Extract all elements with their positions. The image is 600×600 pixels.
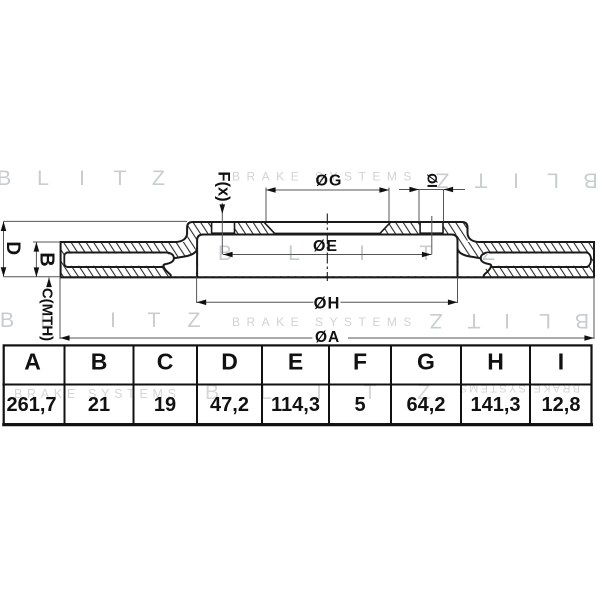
svg-text:261,7: 261,7 <box>6 394 56 416</box>
svg-text:BRAKE SYSTEMS: BRAKE SYSTEMS <box>232 315 418 329</box>
svg-text:I: I <box>110 308 116 332</box>
svg-text:19: 19 <box>154 394 176 416</box>
svg-text:T: T <box>113 166 126 190</box>
svg-text:H: H <box>487 349 504 375</box>
svg-text:C: C <box>157 349 174 375</box>
svg-text:A: A <box>24 349 41 375</box>
svg-text:T: T <box>474 169 487 193</box>
svg-text:Z: Z <box>429 309 442 333</box>
svg-text:B: B <box>575 309 589 333</box>
svg-text:B: B <box>0 308 14 332</box>
svg-text:ØH: ØH <box>314 294 341 312</box>
svg-text:B: B <box>36 252 58 266</box>
svg-text:T: T <box>467 309 480 333</box>
svg-text:Z: Z <box>187 308 200 332</box>
svg-text:I: I <box>359 241 365 265</box>
svg-text:L: L <box>37 166 49 190</box>
svg-text:47,2: 47,2 <box>210 394 249 416</box>
svg-text:I: I <box>558 349 564 375</box>
svg-text:B: B <box>91 349 108 375</box>
svg-text:L: L <box>547 169 559 193</box>
svg-text:Z: Z <box>152 166 165 190</box>
svg-text:ØE: ØE <box>313 238 338 255</box>
svg-text:T: T <box>147 308 160 332</box>
svg-text:ØI: ØI <box>425 173 441 188</box>
svg-text:B: B <box>583 169 597 193</box>
svg-text:I: I <box>79 166 85 190</box>
svg-text:C(MTH): C(MTH) <box>39 288 56 341</box>
svg-text:ØG: ØG <box>316 173 343 190</box>
svg-text:E: E <box>288 349 303 375</box>
svg-text:F: F <box>353 349 367 375</box>
svg-text:L: L <box>288 241 300 265</box>
svg-text:D: D <box>2 241 23 255</box>
svg-text:B: B <box>0 166 11 190</box>
svg-text:F(x): F(x) <box>215 171 233 201</box>
svg-text:12,8: 12,8 <box>542 394 581 416</box>
svg-text:L: L <box>539 309 551 333</box>
svg-text:5: 5 <box>354 394 365 416</box>
svg-text:I: I <box>513 169 519 193</box>
svg-text:141,3: 141,3 <box>470 394 520 416</box>
svg-text:G: G <box>417 349 435 375</box>
svg-text:64,2: 64,2 <box>407 394 446 416</box>
svg-text:D: D <box>221 349 238 375</box>
svg-text:21: 21 <box>88 394 110 416</box>
svg-text:I: I <box>504 309 510 333</box>
svg-text:ØA: ØA <box>315 329 340 346</box>
svg-text:114,3: 114,3 <box>271 394 320 416</box>
